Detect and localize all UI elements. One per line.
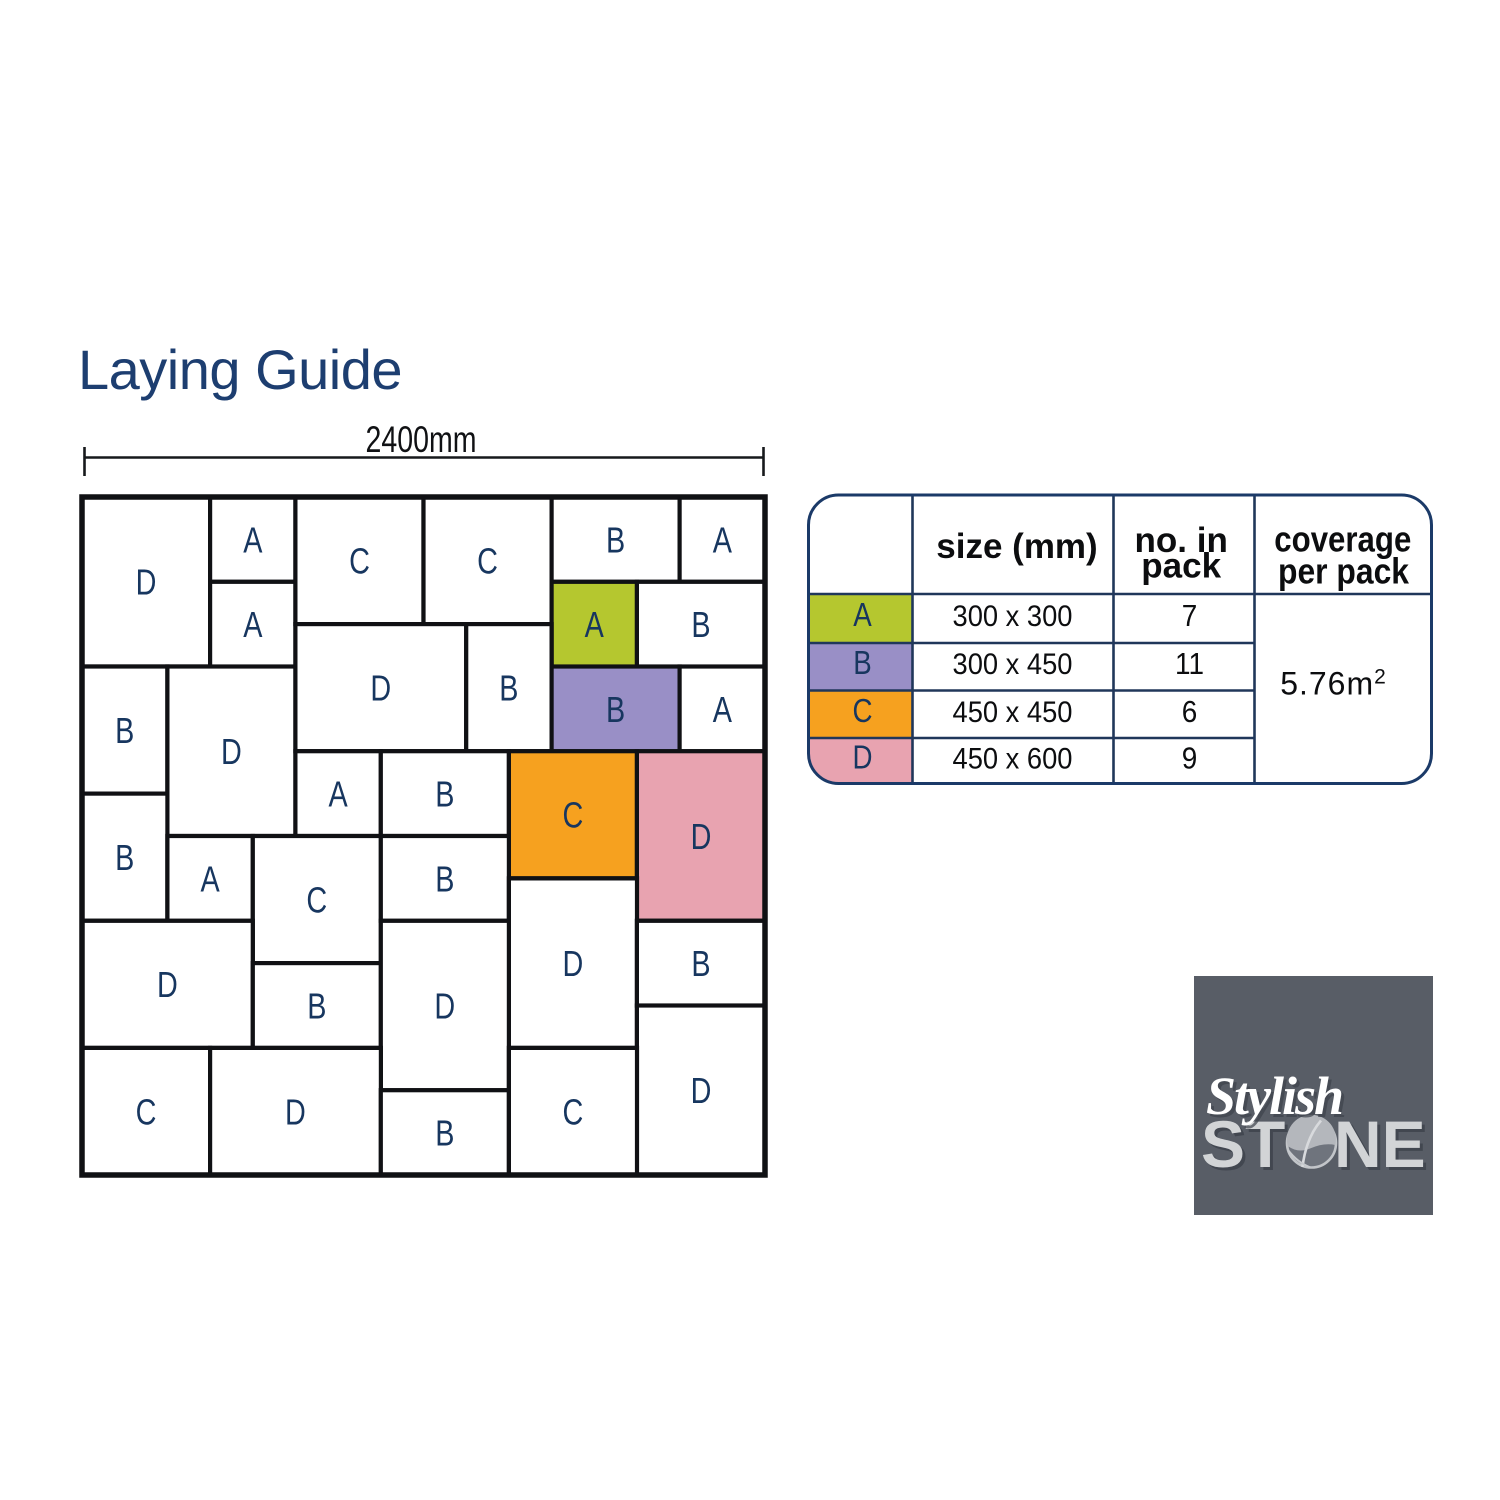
svg-text:5.76m2: 5.76m2: [1280, 666, 1387, 702]
svg-text:D: D: [221, 731, 242, 772]
svg-text:Laying Guide: Laying Guide: [78, 338, 402, 401]
svg-text:B: B: [691, 604, 710, 645]
svg-text:B: B: [307, 985, 326, 1026]
svg-text:6: 6: [1182, 695, 1198, 730]
svg-text:D: D: [691, 1070, 712, 1111]
svg-text:450 x 450: 450 x 450: [953, 696, 1073, 729]
svg-text:C: C: [852, 693, 872, 730]
svg-text:A: A: [243, 604, 262, 645]
svg-text:C: C: [349, 540, 370, 581]
svg-text:D: D: [285, 1091, 306, 1132]
svg-text:2400mm: 2400mm: [366, 419, 477, 460]
svg-text:D: D: [434, 985, 455, 1026]
svg-text:B: B: [435, 1112, 454, 1153]
svg-text:300 x 300: 300 x 300: [953, 600, 1073, 633]
svg-text:11: 11: [1175, 647, 1204, 682]
svg-text:D: D: [691, 816, 712, 857]
svg-text:D: D: [370, 667, 391, 708]
svg-text:C: C: [136, 1091, 157, 1132]
svg-text:D: D: [852, 739, 872, 776]
svg-text:B: B: [606, 519, 625, 560]
svg-text:A: A: [713, 689, 732, 730]
svg-text:B: B: [499, 667, 518, 708]
svg-text:D: D: [136, 562, 157, 603]
svg-text:per pack: per pack: [1278, 551, 1410, 592]
svg-text:7: 7: [1182, 599, 1198, 634]
svg-text:D: D: [157, 964, 178, 1005]
svg-text:B: B: [115, 837, 134, 878]
svg-text:C: C: [563, 1091, 584, 1132]
svg-text:A: A: [243, 519, 262, 560]
svg-text:A: A: [713, 519, 732, 560]
svg-text:D: D: [563, 943, 584, 984]
svg-text:C: C: [563, 795, 584, 836]
svg-text:B: B: [115, 710, 134, 751]
svg-text:300 x 450: 300 x 450: [953, 648, 1073, 681]
svg-text:Stylish: Stylish: [1206, 1066, 1344, 1126]
svg-text:B: B: [435, 858, 454, 899]
svg-text:C: C: [306, 879, 327, 920]
svg-text:A: A: [853, 597, 872, 634]
svg-text:A: A: [200, 858, 219, 899]
svg-text:B: B: [691, 943, 710, 984]
svg-text:450 x 600: 450 x 600: [953, 742, 1073, 775]
svg-text:C: C: [477, 540, 498, 581]
svg-text:size (mm): size (mm): [936, 527, 1097, 566]
svg-text:9: 9: [1182, 741, 1198, 776]
svg-text:pack: pack: [1141, 547, 1221, 586]
svg-text:A: A: [585, 604, 604, 645]
svg-text:NE: NE: [1334, 1107, 1426, 1181]
svg-text:A: A: [328, 773, 347, 814]
svg-text:B: B: [606, 689, 625, 730]
svg-text:B: B: [435, 773, 454, 814]
svg-text:B: B: [853, 645, 871, 682]
